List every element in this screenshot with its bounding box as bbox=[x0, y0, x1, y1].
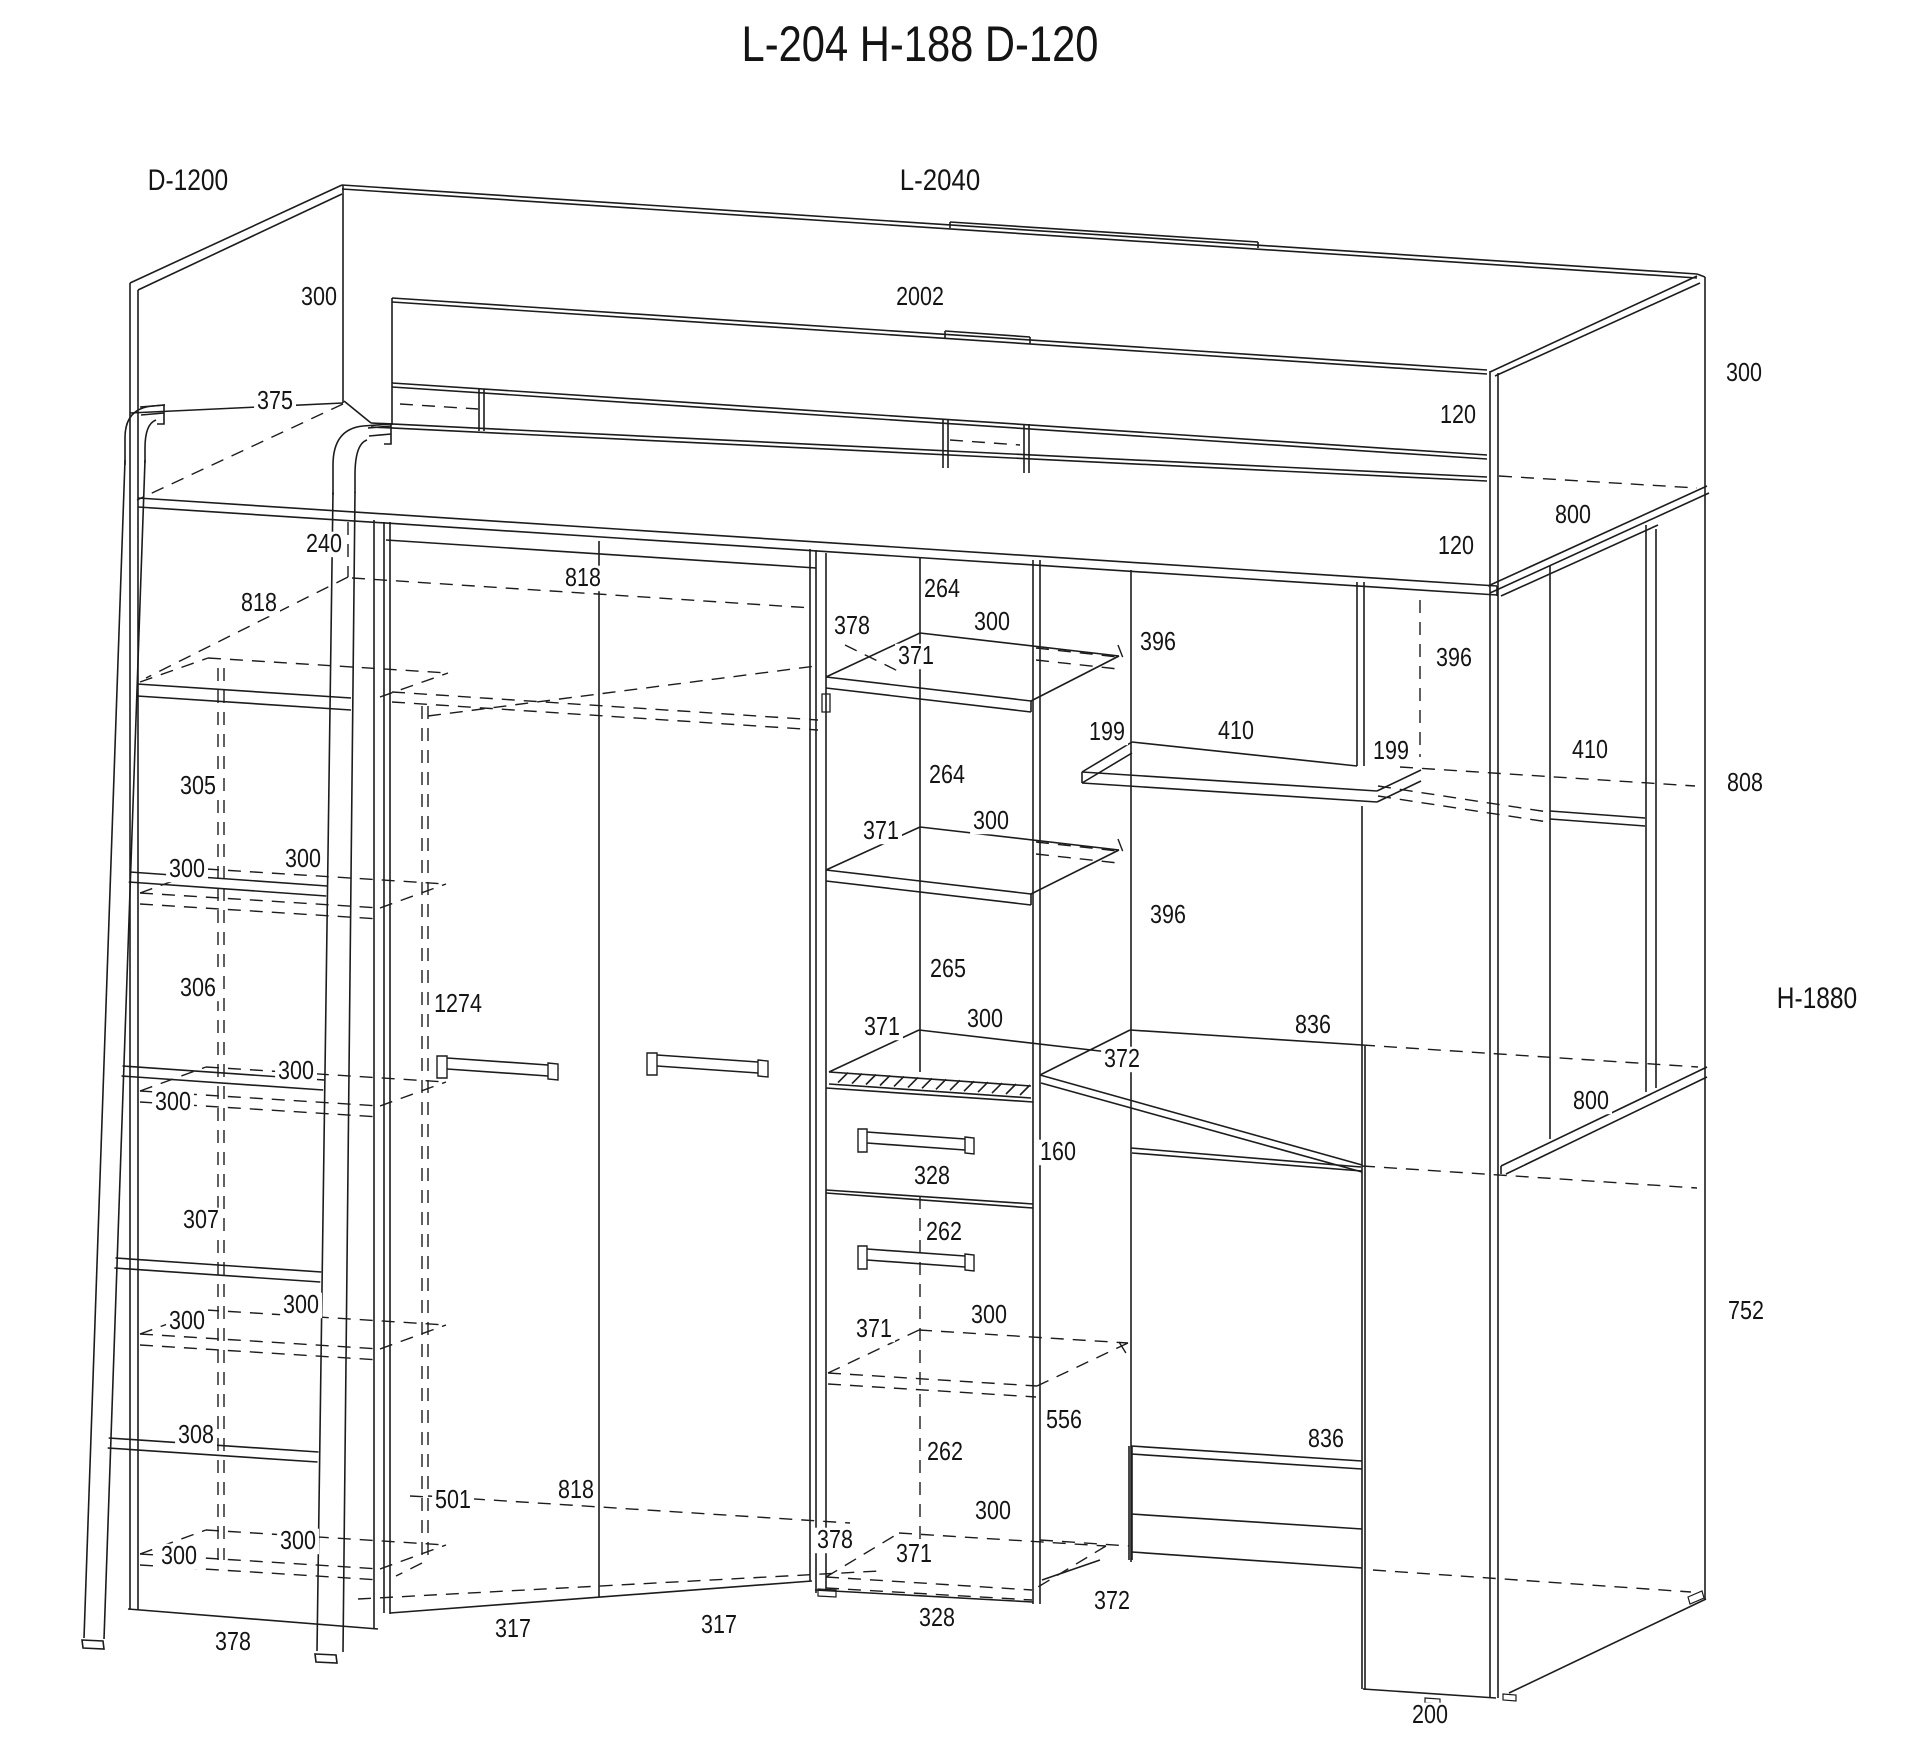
svg-text:306: 306 bbox=[180, 972, 216, 1002]
svg-text:300: 300 bbox=[974, 606, 1010, 636]
svg-text:556: 556 bbox=[1046, 1404, 1082, 1434]
svg-text:300: 300 bbox=[967, 1003, 1003, 1033]
svg-text:L-2040: L-2040 bbox=[900, 164, 980, 197]
svg-text:160: 160 bbox=[1040, 1136, 1076, 1166]
svg-text:300: 300 bbox=[283, 1289, 319, 1319]
svg-text:396: 396 bbox=[1436, 642, 1472, 672]
svg-text:800: 800 bbox=[1573, 1085, 1609, 1115]
svg-text:H-1880: H-1880 bbox=[1777, 982, 1857, 1015]
svg-text:L-204 H-188 D-120: L-204 H-188 D-120 bbox=[742, 16, 1099, 72]
svg-text:2002: 2002 bbox=[896, 281, 944, 311]
svg-text:264: 264 bbox=[929, 759, 965, 789]
svg-text:371: 371 bbox=[896, 1538, 932, 1568]
svg-text:378: 378 bbox=[215, 1626, 251, 1656]
svg-text:371: 371 bbox=[898, 640, 934, 670]
svg-text:262: 262 bbox=[927, 1436, 963, 1466]
svg-text:410: 410 bbox=[1218, 715, 1254, 745]
svg-text:752: 752 bbox=[1728, 1295, 1764, 1325]
svg-text:371: 371 bbox=[856, 1313, 892, 1343]
svg-text:D-1200: D-1200 bbox=[148, 164, 228, 197]
svg-text:378: 378 bbox=[834, 610, 870, 640]
svg-text:199: 199 bbox=[1089, 716, 1125, 746]
svg-text:300: 300 bbox=[280, 1525, 316, 1555]
svg-text:300: 300 bbox=[973, 805, 1009, 835]
svg-text:240: 240 bbox=[306, 528, 342, 558]
svg-text:371: 371 bbox=[864, 1011, 900, 1041]
svg-text:308: 308 bbox=[178, 1419, 214, 1449]
svg-text:1274: 1274 bbox=[434, 988, 482, 1018]
svg-text:836: 836 bbox=[1295, 1009, 1331, 1039]
svg-text:300: 300 bbox=[169, 1305, 205, 1335]
svg-text:375: 375 bbox=[257, 385, 293, 415]
svg-text:300: 300 bbox=[975, 1495, 1011, 1525]
svg-text:501: 501 bbox=[435, 1484, 471, 1514]
svg-text:300: 300 bbox=[1726, 357, 1762, 387]
svg-text:808: 808 bbox=[1727, 767, 1763, 797]
svg-text:120: 120 bbox=[1438, 530, 1474, 560]
svg-text:372: 372 bbox=[1104, 1043, 1140, 1073]
svg-text:396: 396 bbox=[1140, 626, 1176, 656]
svg-text:410: 410 bbox=[1572, 734, 1608, 764]
svg-text:199: 199 bbox=[1373, 735, 1409, 765]
svg-text:818: 818 bbox=[558, 1474, 594, 1504]
svg-text:265: 265 bbox=[930, 953, 966, 983]
svg-text:328: 328 bbox=[919, 1602, 955, 1632]
svg-text:396: 396 bbox=[1150, 899, 1186, 929]
svg-text:371: 371 bbox=[863, 815, 899, 845]
svg-text:300: 300 bbox=[155, 1086, 191, 1116]
svg-text:328: 328 bbox=[914, 1160, 950, 1190]
svg-text:818: 818 bbox=[241, 587, 277, 617]
svg-text:818: 818 bbox=[565, 562, 601, 592]
svg-text:317: 317 bbox=[495, 1613, 531, 1643]
svg-text:307: 307 bbox=[183, 1204, 219, 1234]
svg-text:300: 300 bbox=[301, 281, 337, 311]
svg-text:317: 317 bbox=[701, 1609, 737, 1639]
svg-text:300: 300 bbox=[971, 1299, 1007, 1329]
svg-text:300: 300 bbox=[278, 1055, 314, 1085]
svg-text:800: 800 bbox=[1555, 499, 1591, 529]
svg-text:836: 836 bbox=[1308, 1423, 1344, 1453]
svg-text:300: 300 bbox=[285, 843, 321, 873]
svg-text:372: 372 bbox=[1094, 1585, 1130, 1615]
svg-text:305: 305 bbox=[180, 770, 216, 800]
svg-text:264: 264 bbox=[924, 573, 960, 603]
svg-text:300: 300 bbox=[169, 853, 205, 883]
svg-text:120: 120 bbox=[1440, 399, 1476, 429]
svg-text:262: 262 bbox=[926, 1216, 962, 1246]
svg-text:200: 200 bbox=[1412, 1699, 1448, 1729]
svg-text:378: 378 bbox=[817, 1524, 853, 1554]
svg-text:300: 300 bbox=[161, 1540, 197, 1570]
